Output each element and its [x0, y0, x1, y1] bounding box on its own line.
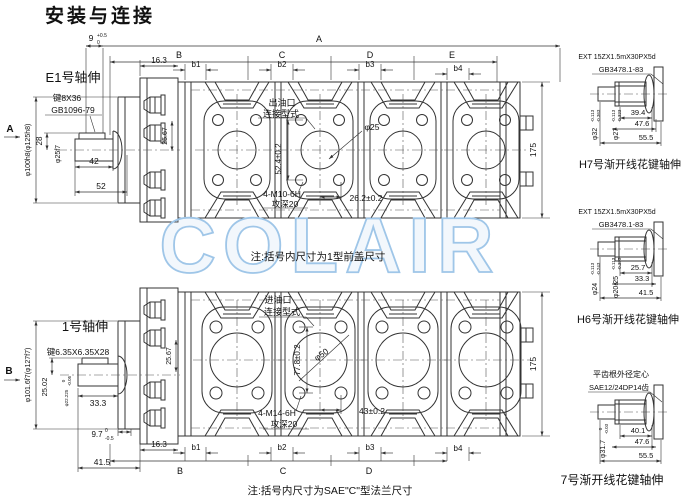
top-dim-9-lower-tol: 0 — [97, 40, 100, 46]
h6-spline-standard: GB3478.1-83 — [599, 220, 644, 229]
spline-h7-drawing — [590, 67, 668, 121]
top-dim-b1: b1 — [192, 60, 201, 69]
bottom-dim-97-lower-tol: -0.5 — [105, 436, 114, 442]
bottom-key-label: 键6.35X6.35X28 — [47, 347, 110, 357]
h7-dia2-lower-tol: -0.323 — [617, 109, 622, 122]
h7-len3: 55.5 — [639, 133, 654, 142]
h6-len3: 41.5 — [639, 288, 654, 297]
bottom-view-note: 注:括号内尺寸为SAE"C"型法兰尺寸 — [248, 484, 413, 497]
h7-dia2-upper-tol: -0.113 — [611, 109, 616, 122]
top-pilot-diameter: φ100h8(φ125h8) — [25, 124, 32, 177]
watermark: COLAIR — [160, 201, 501, 289]
bottom-dim-97-upper-tol: 0 — [105, 428, 108, 434]
top-seg-b: B — [176, 50, 182, 60]
top-section-mark: A — [6, 124, 13, 135]
spline-h6-drawing — [590, 222, 668, 276]
bottom-view-body — [140, 288, 533, 444]
bottom-tap-spec: 4-M14-6H — [258, 408, 296, 418]
h7-spline-standard: GB3478.1-83 — [599, 65, 644, 74]
top-dim-42: 42 — [89, 156, 99, 166]
bottom-dim-778: 77.8±0.2 — [293, 344, 302, 376]
bottom-dim-2502: 25.02 — [40, 378, 49, 397]
h7-spline-label: H7号渐开线花键轴伸 — [579, 157, 681, 171]
top-seg-d: D — [367, 50, 374, 60]
bottom-dim-b2: b2 — [278, 443, 287, 452]
s7-spline-label: 7号渐开线花键轴伸 — [561, 472, 664, 487]
top-dim-9-upper-tol: +0.5 — [97, 33, 107, 39]
bottom-dim-175: 175 — [528, 357, 538, 371]
bottom-shaft-dia-upper-tol: 0 — [61, 379, 66, 382]
s7-dia1-upper-tol: 0 — [598, 427, 603, 430]
h6-dia2-upper-tol: -0.113 — [611, 257, 616, 270]
bottom-dim-333: 33.3 — [90, 398, 107, 408]
top-view-note: 注:括号内尺寸为1型前盖尺寸 — [251, 250, 386, 263]
top-port-diameter: φ25 — [365, 122, 380, 132]
s7-spec-line2: SAE12/24DP14齿 — [589, 383, 650, 392]
top-dim-175: 175 — [528, 143, 538, 157]
bottom-dim-415: 41.5 — [94, 457, 111, 467]
top-view-label: E1号轴伸 — [46, 70, 101, 85]
page-title: 安装与连接 — [45, 4, 155, 27]
bottom-dim-163: 16.3 — [151, 440, 167, 449]
bottom-port-label-line1: 进油口 — [264, 294, 291, 305]
bottom-pilot-diameter: φ101.6f7(φ127f7) — [25, 348, 32, 403]
top-seg-e: E — [449, 50, 455, 60]
bottom-dim-b1: b1 — [192, 443, 201, 452]
top-tap-spec: 4-M10-6H — [263, 189, 301, 199]
bottom-dim-97: 9.7 — [91, 430, 103, 439]
bottom-shaft-dia-lower-tol: -0.05 — [67, 375, 72, 386]
bottom-section-mark: B — [5, 366, 12, 377]
installation-drawing: 安装与连接 COLAIR E1号轴伸 键8X36 GB1096-79 φ100h… — [0, 0, 685, 501]
top-dim-524: 52.4±0.2 — [274, 143, 283, 175]
top-dim-b4: b4 — [454, 64, 463, 73]
bottom-dim-b3: b3 — [366, 443, 375, 452]
top-dim-9: 9 — [89, 33, 94, 43]
h6-spline-spec: EXT 15ZX1.5mX30PX5d — [578, 209, 655, 216]
top-port-label-line1: 出油口 — [268, 97, 295, 108]
bottom-dim-43: 43±0.2 — [359, 406, 385, 416]
h6-dia1-upper-tol: -0.113 — [590, 262, 595, 275]
top-key-standard: GB1096-79 — [51, 105, 95, 115]
s7-len3: 55.5 — [639, 451, 654, 460]
bottom-dim-b4: b4 — [454, 444, 463, 453]
top-shaft-diameter: φ25f7 — [55, 145, 62, 163]
bottom-shaft-diameter: φ22.225 — [64, 389, 69, 406]
h6-dia1: φ24 — [592, 283, 599, 295]
h7-dia1-upper-tol: -0.113 — [590, 109, 595, 122]
h6-spline-label: H6号渐开线花键轴伸 — [577, 312, 679, 326]
bottom-view-label: 1号轴伸 — [62, 319, 108, 334]
s7-spec-line1: 平齿根外径定心 — [593, 369, 649, 379]
top-tap-depth: 攻深20 — [272, 199, 299, 209]
bottom-seg-c: C — [280, 466, 287, 476]
s7-dia1-lower-tol: -0.03 — [604, 423, 609, 434]
top-dim-2567: 25.67 — [162, 127, 169, 145]
bottom-dim-2567: 25.67 — [166, 347, 173, 365]
bottom-port-label-line2: 连接型式 — [264, 306, 300, 317]
h7-len2: 47.6 — [635, 119, 650, 128]
top-dim-b3: b3 — [366, 60, 375, 69]
s7-dia1: φ31.7 — [600, 440, 607, 458]
bottom-port-diameter: φ50 — [312, 346, 330, 363]
h6-dia2-lower-tol: -0.393 — [617, 257, 622, 270]
h6-dia1-lower-tol: -0.243 — [596, 262, 601, 275]
bottom-seg-b: B — [177, 466, 183, 476]
h7-dia1: φ32 — [592, 128, 599, 140]
h6-dia2: φ20.25 — [613, 276, 620, 298]
top-seg-c: C — [279, 50, 286, 60]
h7-len1: 39.4 — [631, 108, 646, 117]
s7-len2: 47.6 — [635, 437, 650, 446]
top-dim-163: 16.3 — [151, 56, 167, 65]
h6-len1: 25.7 — [631, 263, 646, 272]
bottom-seg-d: D — [366, 466, 373, 476]
bottom-tap-depth: 攻深20 — [271, 419, 298, 429]
s7-len1: 40.1 — [631, 426, 646, 435]
top-dim-262: 26.2±0.2 — [349, 193, 382, 203]
top-dim-b2: b2 — [278, 60, 287, 69]
h7-dia2: φ27 — [613, 128, 620, 140]
h6-len2: 33.3 — [635, 274, 650, 283]
top-key-label: 键8X36 — [53, 93, 82, 103]
top-dim-52: 52 — [96, 181, 106, 191]
top-dim-28: 28 — [35, 136, 44, 145]
h7-dia1-lower-tol: -0.363 — [596, 109, 601, 122]
top-port-label-line2: 连接型式 — [263, 108, 299, 119]
drawing-sheet: 安装与连接 COLAIR E1号轴伸 键8X36 GB1096-79 φ100h… — [0, 0, 685, 501]
h7-spline-spec: EXT 15ZX1.5mX30PX5d — [578, 54, 655, 61]
top-overall-dim-a: A — [316, 34, 322, 44]
